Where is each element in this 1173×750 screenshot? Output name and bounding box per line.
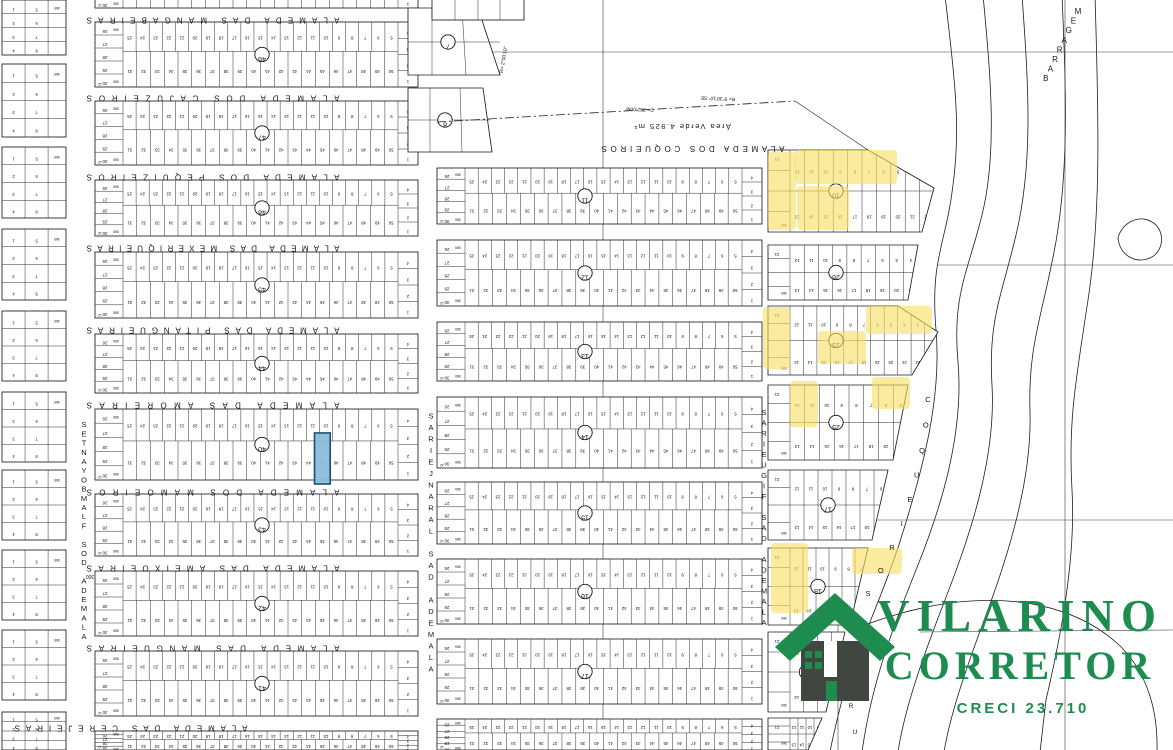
map-text: 11 <box>808 651 813 656</box>
map-text: 20 <box>535 412 540 417</box>
map-text: 20 <box>192 507 197 512</box>
map-text: 10 <box>821 651 826 656</box>
map-text: 16 <box>587 572 592 577</box>
map-text: 10 <box>666 334 671 339</box>
map-text: 14 <box>614 334 619 339</box>
map-text: 35 <box>524 741 529 746</box>
map-text: 17 <box>574 254 579 259</box>
map-text: 49 <box>718 365 723 370</box>
map-text: 17 <box>851 288 856 293</box>
map-text: 33 <box>497 527 502 532</box>
map-text: 22 <box>166 507 171 512</box>
map-text: 17 <box>231 734 236 739</box>
map-text: 26 <box>102 186 107 191</box>
street-letter: S <box>428 550 433 559</box>
map-text: 12 <box>98 551 102 555</box>
map-text: 12 <box>98 313 102 317</box>
map-text: 36 <box>538 527 543 532</box>
map-text: 13 <box>627 179 632 184</box>
map-text: 12 <box>794 322 799 327</box>
highlighted-lot-yellow[interactable] <box>866 306 932 334</box>
map-text: 33 <box>154 147 159 152</box>
map-text: 37 <box>209 147 214 152</box>
map-text: 50 <box>732 365 737 370</box>
map-text: 47 <box>691 527 696 532</box>
map-text: 14 <box>809 444 814 449</box>
map-text: 34 <box>168 461 173 466</box>
block-number: 16 <box>581 592 589 599</box>
map-text: 31 <box>469 686 474 691</box>
map-text: 45 <box>319 147 324 152</box>
map-text: 39 <box>237 69 242 74</box>
map-text: 46 <box>677 449 682 454</box>
area-verde-label: Área Verde 4.925 m² <box>633 122 731 131</box>
map-text: 19 <box>205 346 210 351</box>
map-text: 15 <box>258 114 263 119</box>
map-text: 22 <box>166 191 171 196</box>
map-text: 42 <box>278 300 283 305</box>
map-text: 43 <box>292 69 297 74</box>
map-text: 15 <box>601 334 606 339</box>
map-text: 36 <box>196 744 201 749</box>
map-text: 20 <box>535 334 540 339</box>
map-text: 16 <box>244 114 249 119</box>
map-text: 24 <box>482 254 487 259</box>
map-text: 49 <box>718 686 723 691</box>
map-text: 50 <box>388 220 393 225</box>
map-text: 12 <box>640 572 645 577</box>
map-text: 25 <box>469 412 474 417</box>
street-letter: N <box>81 448 86 457</box>
map-text: 38 <box>566 686 571 691</box>
map-text: 360 <box>781 741 787 745</box>
map-text: 10 <box>666 495 671 500</box>
map-text: 35 <box>524 288 529 293</box>
map-text: 45 <box>663 741 668 746</box>
map-text: 21 <box>179 664 184 669</box>
map-text: 49 <box>374 220 379 225</box>
map-text: 44 <box>649 208 654 213</box>
map-text: 48 <box>361 220 366 225</box>
street-letter: A <box>428 665 433 674</box>
map-text: 49 <box>374 618 379 623</box>
map-text: 28 <box>444 592 449 597</box>
map-text: 24 <box>482 334 487 339</box>
map-text: 11 <box>799 725 804 730</box>
map-text: 24 <box>482 495 487 500</box>
street-letter: A <box>428 596 433 605</box>
street-letter: R <box>849 703 854 710</box>
map-text: 11 <box>653 725 658 730</box>
map-text: 360 <box>54 319 60 323</box>
map-text: 49 <box>718 527 723 532</box>
map-text: 18 <box>561 179 566 184</box>
block-number: 40 <box>258 445 266 452</box>
map-text: 32 <box>141 539 146 544</box>
map-text: 32 <box>141 220 146 225</box>
street-letter: C <box>925 395 931 404</box>
map-text: 34 <box>168 539 173 544</box>
map-text: 45 <box>663 606 668 611</box>
map-text: 23 <box>153 346 158 351</box>
map-text: 16 <box>815 743 820 748</box>
barragem-letter: G <box>1066 26 1072 35</box>
map-text: 19 <box>205 266 210 271</box>
map-text: 33 <box>497 449 502 454</box>
map-text: 37 <box>552 686 557 691</box>
map-text: 44 <box>306 618 311 623</box>
map-text: 21 <box>179 114 184 119</box>
map-text: 29 <box>102 299 107 304</box>
map-text: 43 <box>292 461 297 466</box>
map-text: 11 <box>310 114 315 119</box>
map-text: 14 <box>271 507 276 512</box>
map-text: 42 <box>621 288 626 293</box>
map-text: 47 <box>691 365 696 370</box>
map-text: 14 <box>808 525 813 530</box>
street-letter: D <box>761 534 767 543</box>
map-text: 45 <box>319 69 324 74</box>
map-text: 21 <box>774 639 779 644</box>
map-text: 36 <box>538 365 543 370</box>
map-text: 21 <box>774 252 779 257</box>
street-letter: L <box>762 608 766 617</box>
map-text: 10 <box>820 566 825 571</box>
map-text: 26 <box>444 646 449 651</box>
map-text: 45 <box>319 220 324 225</box>
street-letter: D <box>761 566 767 575</box>
map-text: 41 <box>264 69 269 74</box>
street-letter: A <box>428 492 433 501</box>
map-text: 19 <box>205 584 210 589</box>
map-text: 23 <box>495 652 500 657</box>
map-text: 22 <box>508 495 513 500</box>
map-text: 21 <box>521 179 526 184</box>
map-text: 10 <box>666 572 671 577</box>
map-text: 27 <box>102 197 107 202</box>
map-text: 19 <box>548 334 553 339</box>
map-text: 45 <box>319 300 324 305</box>
map-text: 12 <box>640 412 645 417</box>
map-text: 25 <box>127 346 132 351</box>
map-text: 14 <box>271 191 276 196</box>
map-text: 13 <box>284 424 289 429</box>
map-text: 26 <box>444 723 449 728</box>
map-text: 18 <box>218 114 223 119</box>
far-left-blocks: 1526374836015263748360152637483601526374… <box>2 0 66 750</box>
map-text: 44 <box>649 288 654 293</box>
street-label: ALAMEDA DAS AMOREIRAS <box>85 401 340 410</box>
map-text: 12 <box>98 160 102 164</box>
map-text: 24 <box>140 734 145 739</box>
map-text: 27 <box>444 340 449 345</box>
map-text: 28 <box>102 209 107 214</box>
map-text: 50 <box>388 618 393 623</box>
map-text: 17 <box>231 114 236 119</box>
map-text: 45 <box>319 539 324 544</box>
map-text: 14 <box>271 584 276 589</box>
highlighted-lot-yellow[interactable] <box>771 543 808 613</box>
map-text: 360 <box>455 617 461 621</box>
map-text: 42 <box>621 741 626 746</box>
map-text: 49 <box>374 147 379 152</box>
map-text: 16 <box>244 664 249 669</box>
street-letter: O <box>878 566 884 575</box>
map-text: 14 <box>271 424 276 429</box>
map-text: 42 <box>621 365 626 370</box>
map-text: 15 <box>822 525 827 530</box>
map-text: 24 <box>140 191 145 196</box>
map-text: 45 <box>319 698 324 703</box>
map-text: 13 <box>284 734 289 739</box>
map-text: 50 <box>732 449 737 454</box>
map-text: 14 <box>271 35 276 40</box>
map-text: 35 <box>182 539 187 544</box>
map-text: 360 <box>113 80 119 84</box>
map-text: 46 <box>333 220 338 225</box>
map-text: 26 <box>102 501 107 506</box>
highlighted-lot-yellow[interactable] <box>790 381 818 427</box>
map-text: 18 <box>218 664 223 669</box>
map-text: 24 <box>140 507 145 512</box>
map-text: 18 <box>218 35 223 40</box>
map-text: 31 <box>127 744 132 749</box>
street-letter: E <box>428 619 433 628</box>
barragem-letter: E <box>1071 17 1076 26</box>
highlighted-lot-yellow[interactable] <box>818 331 866 364</box>
map-text: 19 <box>205 507 210 512</box>
map-text: 37 <box>552 606 557 611</box>
map-text: 37 <box>209 618 214 623</box>
map-text: 28 <box>102 604 107 609</box>
map-text: 24 <box>140 584 145 589</box>
map-text: 22 <box>166 664 171 669</box>
map-text: 38 <box>223 69 228 74</box>
map-text: 20 <box>192 584 197 589</box>
map-text: 11 <box>310 346 315 351</box>
highlighted-lot-yellow[interactable] <box>768 152 796 230</box>
map-text: 39 <box>580 741 585 746</box>
map-text: 14 <box>808 288 813 293</box>
map-text: 10 <box>323 424 328 429</box>
map-text: 32 <box>483 365 488 370</box>
map-text: 39 <box>580 449 585 454</box>
map-text: 22 <box>508 572 513 577</box>
map-text: 33 <box>154 377 159 382</box>
street-letter: S <box>81 540 86 549</box>
map-text: 26 <box>102 417 107 422</box>
map-text: 33 <box>154 300 159 305</box>
map-text: 40 <box>251 147 256 152</box>
map-text: 43 <box>292 300 297 305</box>
map-text: 21 <box>179 507 184 512</box>
highlighted-lot-yellow[interactable] <box>872 377 910 409</box>
map-text: 11 <box>808 258 813 263</box>
map-text: 42 <box>278 618 283 623</box>
map-text: 18 <box>859 609 864 614</box>
map-text: 12 <box>98 745 102 749</box>
map-text: 31 <box>469 365 474 370</box>
map-text: 44 <box>649 527 654 532</box>
map-text: 50 <box>388 539 393 544</box>
map-text: 14 <box>614 412 619 417</box>
map-text: 25 <box>469 254 474 259</box>
street-letter: I <box>901 519 903 528</box>
map-text: 37 <box>552 741 557 746</box>
map-text: 23 <box>153 266 158 271</box>
street-label: ALAMEDA DAS PITANGUEIRAS <box>84 326 339 335</box>
highlighted-lot-yellow[interactable] <box>763 307 790 369</box>
map-text: 13 <box>791 743 796 748</box>
map-text: 13 <box>284 346 289 351</box>
map-text: 360 <box>113 472 119 476</box>
map-text: 42 <box>278 744 283 749</box>
map-text: 40 <box>251 300 256 305</box>
map-text: 360 <box>113 106 119 110</box>
map-text: 23 <box>153 507 158 512</box>
map-text: 22 <box>166 266 171 271</box>
map-text: 13 <box>794 695 799 700</box>
map-text: 16 <box>587 179 592 184</box>
map-text: 32 <box>483 686 488 691</box>
street-letter: A <box>81 632 86 641</box>
block-number: 13 <box>581 352 589 359</box>
map-text: 36 <box>196 69 201 74</box>
map-text: 27 <box>444 729 449 734</box>
map-text: 18 <box>218 734 223 739</box>
map-text: 27 <box>102 513 107 518</box>
map-text: 16 <box>587 412 592 417</box>
map-text: 26 <box>444 174 449 179</box>
map-text: 14 <box>614 572 619 577</box>
map-text: 12 <box>640 652 645 657</box>
map-text: 26 <box>102 259 107 264</box>
map-text: 42 <box>278 220 283 225</box>
map-text: 25 <box>127 734 132 739</box>
map-text: 19 <box>881 215 886 220</box>
map-text: 360 <box>781 531 787 535</box>
map-text: 360 <box>455 721 461 725</box>
map-text: 15 <box>601 725 606 730</box>
map-text: 25 <box>127 507 132 512</box>
map-text: 36 <box>538 449 543 454</box>
map-text: 29 <box>102 617 107 622</box>
map-text: 33 <box>154 744 159 749</box>
map-text: 33 <box>497 606 502 611</box>
map-text: 29 <box>444 287 449 292</box>
map-text: 19 <box>874 360 879 365</box>
map-text: 17 <box>231 266 236 271</box>
block-number: 44 <box>258 364 266 371</box>
map-text: 16 <box>587 652 592 657</box>
map-text: 16 <box>836 525 841 530</box>
map-text: 10 <box>823 258 828 263</box>
map-text: 47 <box>691 208 696 213</box>
map-text: 44 <box>649 606 654 611</box>
map-text: 16 <box>244 584 249 589</box>
map-text: 29 <box>444 447 449 452</box>
map-text: 43 <box>292 698 297 703</box>
street-letter: L <box>429 653 433 662</box>
map-text: 20 <box>894 288 899 293</box>
map-text: 49 <box>374 744 379 749</box>
map-text: 39 <box>580 365 585 370</box>
map-text: 15 <box>601 254 606 259</box>
map-text: 38 <box>566 527 571 532</box>
map-text: 360 <box>455 537 461 541</box>
street-letter: S <box>428 412 433 421</box>
map-text: 29 <box>102 697 107 702</box>
block-number: 17 <box>581 672 589 679</box>
map-text: 33 <box>497 686 502 691</box>
map-text: 25 <box>469 572 474 577</box>
map-text: 21 <box>179 346 184 351</box>
map-text: 26 <box>444 328 449 333</box>
map-text: 33 <box>497 365 502 370</box>
map-text: 34 <box>510 741 515 746</box>
map-text: 47 <box>347 69 352 74</box>
map-text: 15 <box>258 507 263 512</box>
map-text: 17 <box>852 215 857 220</box>
map-text: 42 <box>621 686 626 691</box>
map-text: 16 <box>244 507 249 512</box>
map-text: 42 <box>278 69 283 74</box>
selected-lot-blue[interactable] <box>315 433 331 484</box>
map-text: 43 <box>635 288 640 293</box>
map-text: 360 <box>455 374 461 378</box>
map-text: 360 <box>455 403 461 407</box>
highlighted-lot-yellow[interactable] <box>797 186 849 230</box>
map-text: 25 <box>127 424 132 429</box>
map-text: 31 <box>469 449 474 454</box>
map-text: 31 <box>127 539 132 544</box>
map-text: 10 <box>323 266 328 271</box>
map-text: 20 <box>535 652 540 657</box>
map-text: 48 <box>361 300 366 305</box>
map-text: 29 <box>102 220 107 225</box>
map-text: 41 <box>607 288 612 293</box>
map-text: 21 <box>179 266 184 271</box>
map-text: 18 <box>561 495 566 500</box>
map-text: 25 <box>127 584 132 589</box>
map-text: 10 <box>807 725 812 730</box>
map-text: 18 <box>561 254 566 259</box>
map-text: 43 <box>292 618 297 623</box>
map-text: 38 <box>223 618 228 623</box>
map-text: 34 <box>510 288 515 293</box>
map-text: 15 <box>820 609 825 614</box>
map-text: 26 <box>102 29 107 34</box>
street-letter: L <box>82 623 86 632</box>
map-text: 37 <box>552 288 557 293</box>
map-text: 10 <box>666 412 671 417</box>
map-text: 35 <box>524 365 529 370</box>
map-text: 42 <box>621 606 626 611</box>
street-label: ALAMEDA DAS AMEIXOEIRAS <box>85 564 340 573</box>
map-text: 10 <box>821 322 826 327</box>
street-letter: E <box>81 595 86 604</box>
map-text: 22 <box>508 725 513 730</box>
street-letter: R <box>428 435 434 444</box>
map-text: 14 <box>271 266 276 271</box>
map-text: 41 <box>264 698 269 703</box>
map-text: 12 <box>297 424 302 429</box>
street-letter: R <box>761 429 767 438</box>
map-text: 11 <box>653 572 658 577</box>
highlighted-lot-yellow[interactable] <box>795 150 897 184</box>
map-text: 28 <box>444 197 449 202</box>
map-text: 21 <box>179 734 184 739</box>
